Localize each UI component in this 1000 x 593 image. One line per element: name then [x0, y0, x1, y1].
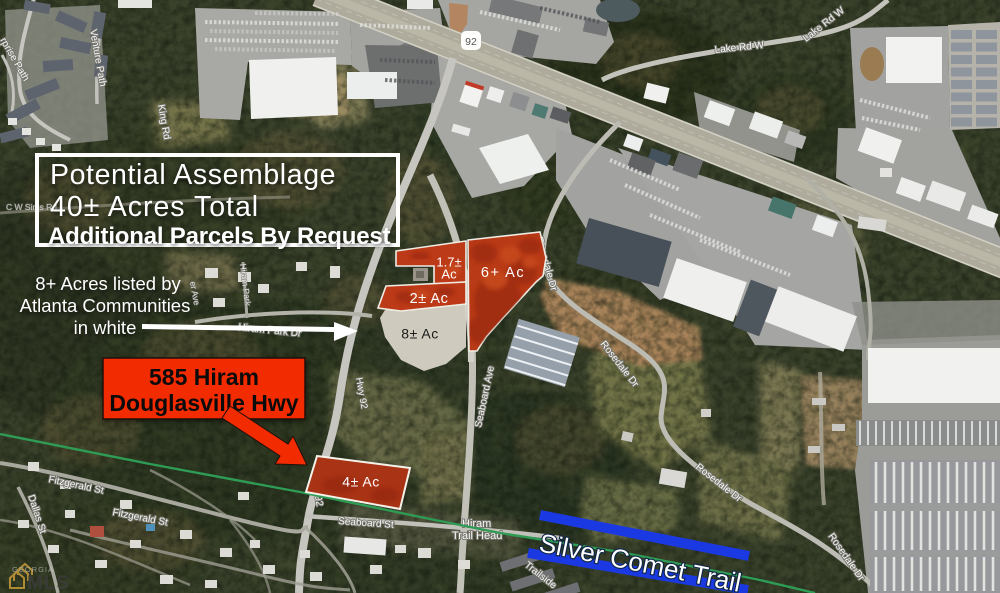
svg-text:8+ Acres listed by: 8+ Acres listed by — [35, 273, 181, 294]
svg-text:4± Ac: 4± Ac — [342, 474, 379, 490]
svg-text:Ac: Ac — [441, 267, 457, 282]
svg-text:8± Ac: 8± Ac — [401, 326, 438, 342]
svg-text:Douglasville Hwy: Douglasville Hwy — [109, 390, 298, 416]
svg-text:6+ Ac: 6+ Ac — [481, 265, 525, 281]
svg-text:2± Ac: 2± Ac — [410, 291, 449, 307]
svg-text:40± Acres Total: 40± Acres Total — [50, 191, 259, 223]
svg-text:in white: in white — [74, 317, 137, 338]
svg-text:585 Hiram: 585 Hiram — [149, 364, 259, 390]
svg-text:MLS: MLS — [27, 573, 70, 593]
svg-text:Potential Assemblage: Potential Assemblage — [50, 159, 336, 191]
svg-text:Atlanta Communities: Atlanta Communities — [20, 295, 191, 316]
svg-text:Additional Parcels By Request: Additional Parcels By Request — [48, 223, 391, 250]
svg-text:92: 92 — [465, 36, 477, 48]
